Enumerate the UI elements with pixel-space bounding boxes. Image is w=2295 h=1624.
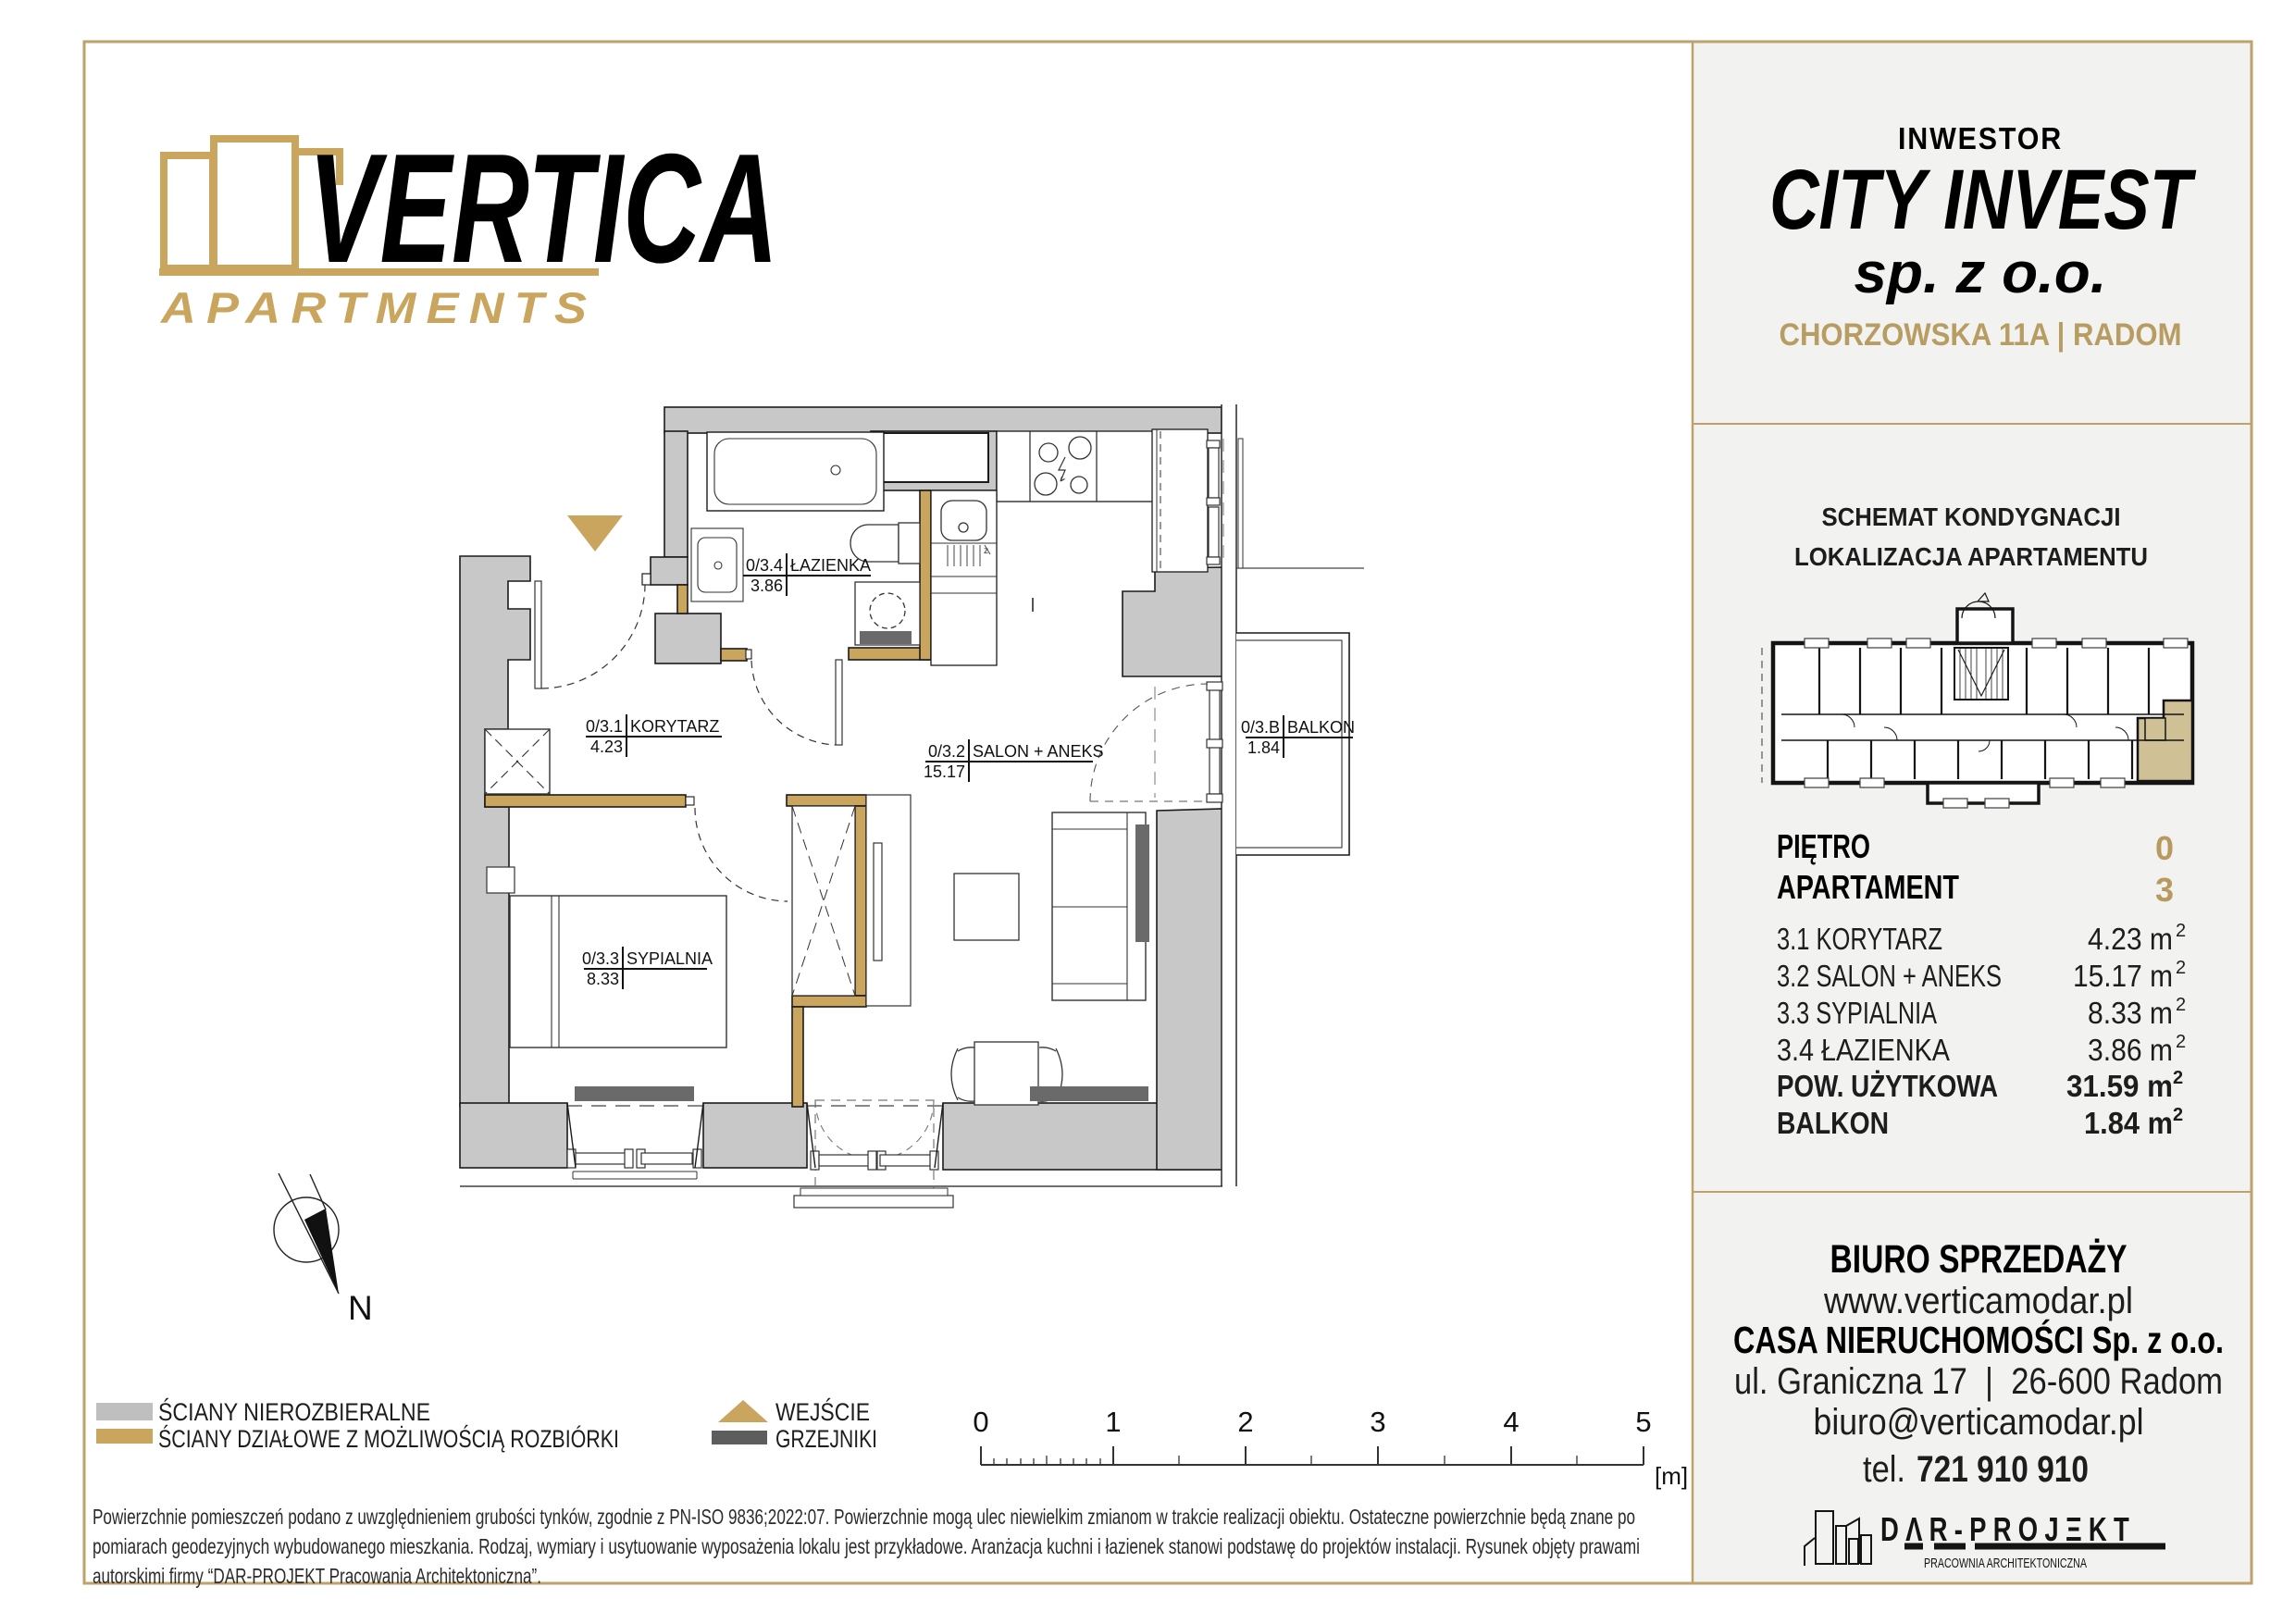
svg-text:WEJŚCIE: WEJŚCIE [775,1396,870,1426]
svg-text:3.2 SALON + ANEKS: 3.2 SALON + ANEKS [1777,959,2002,993]
svg-text:2: 2 [2176,921,2186,941]
svg-text:tel.: tel. [1863,1449,1905,1490]
svg-text:3.3 SYPIALNIA: 3.3 SYPIALNIA [1777,996,1937,1030]
svg-text:0: 0 [2155,829,2174,867]
svg-text:2: 2 [1237,1406,1253,1438]
svg-text:2: 2 [2176,995,2186,1015]
svg-text:3: 3 [2155,871,2174,909]
svg-text:N: N [348,1289,373,1327]
svg-text:0: 0 [973,1406,988,1438]
svg-text:INWESTOR: INWESTOR [1898,121,2063,155]
svg-text:ul. Graniczna 17 | 26-600 Ra: ul. Graniczna 17 | 26-600 Radom [1734,1361,2223,1402]
svg-text:APARTMENTS: APARTMENTS [160,283,597,332]
svg-text:0/3.1: 0/3.1 [586,717,623,736]
svg-text:1: 1 [1105,1406,1121,1438]
svg-text:sp. z o.o.: sp. z o.o. [1855,242,2107,305]
svg-text:0/3.2: 0/3.2 [928,742,965,761]
svg-text:3.1 KORYTARZ: 3.1 KORYTARZ [1777,922,1942,956]
svg-text:4: 4 [1503,1406,1519,1438]
svg-text:3: 3 [1370,1406,1385,1438]
svg-text:721 910 910: 721 910 910 [1917,1449,2089,1490]
svg-text:PIĘTRO: PIĘTRO [1777,827,1870,865]
svg-text:5: 5 [1635,1406,1651,1438]
svg-text:CASA NIERUCHOMOŚCI Sp. z o.o.: CASA NIERUCHOMOŚCI Sp. z o.o. [1733,1319,2224,1361]
svg-text:8.33: 8.33 [587,970,619,988]
svg-text:CHORZOWSKA 11A | RADOM: CHORZOWSKA 11A | RADOM [1780,317,2182,353]
svg-text:4.23: 4.23 [590,738,623,756]
svg-text:0/3.B: 0/3.B [1241,718,1280,737]
svg-text:1.84 m: 1.84 m [2084,1106,2173,1140]
svg-text:VERTICA: VERTICA [308,121,778,295]
svg-text:BALKON: BALKON [1287,718,1355,737]
svg-text:2: 2 [2173,1068,2183,1088]
svg-text:15.17 m: 15.17 m [2073,959,2173,993]
svg-text:0/3.4: 0/3.4 [746,556,783,575]
svg-text:3.86 m: 3.86 m [2088,1033,2173,1067]
svg-text:PRACOWNIA ARCHITEKTONICZNA: PRACOWNIA ARCHITEKTONICZNA [1924,1556,2087,1571]
svg-text:SALON + ANEKS: SALON + ANEKS [973,742,1104,761]
svg-text:4.23 m: 4.23 m [2088,922,2173,956]
svg-text:1.84: 1.84 [1247,738,1280,757]
svg-text:pomiarach geodezyjnych wybudow: pomiarach geodezyjnych wybudowanego mies… [93,1534,1640,1558]
svg-text:0/3.3: 0/3.3 [582,949,619,968]
svg-text:biuro@verticamodar.pl: biuro@verticamodar.pl [1814,1402,2144,1443]
svg-text:2: 2 [2176,958,2186,978]
svg-text:GRZEJNIKI: GRZEJNIKI [775,1425,877,1453]
svg-text:3.86: 3.86 [751,576,783,595]
svg-text:POW. UŻYTKOWA: POW. UŻYTKOWA [1777,1069,1998,1103]
svg-text:z: z [984,546,988,556]
svg-text:3.4 ŁAZIENKA: 3.4 ŁAZIENKA [1777,1033,1950,1067]
svg-text:ŚCIANY NIEROZBIERALNE: ŚCIANY NIEROZBIERALNE [158,1396,430,1426]
svg-text:8.33 m: 8.33 m [2088,996,2173,1030]
svg-text:LOKALIZACJA APARTAMENTU: LOKALIZACJA APARTAMENTU [1794,542,2148,571]
svg-text:[m]: [m] [1655,1462,1688,1490]
svg-text:31.59 m: 31.59 m [2066,1069,2173,1103]
svg-text:15.17: 15.17 [924,762,965,781]
svg-text:KORYTARZ: KORYTARZ [630,717,719,736]
svg-text:Powierzchnie pomieszczeń podan: Powierzchnie pomieszczeń podano z uwzglę… [93,1505,1635,1529]
svg-text:autorskimi firmy “DAR-PROJEKT: autorskimi firmy “DAR-PROJEKT Pracowania… [93,1564,541,1588]
svg-text:SCHEMAT KONDYGNACJI: SCHEMAT KONDYGNACJI [1822,502,2121,531]
svg-text:ŁAZIENKA: ŁAZIENKA [790,556,871,575]
svg-text:DΛR-PROJΞKT: DΛR-PROJΞKT [1880,1510,2136,1548]
svg-text:BIURO SPRZEDAŻY: BIURO SPRZEDAŻY [1830,1237,2128,1282]
svg-text:BALKON: BALKON [1777,1106,1889,1140]
svg-text:SYPIALNIA: SYPIALNIA [626,949,713,968]
svg-text:2: 2 [2173,1105,2183,1125]
svg-text:CITY INVEST: CITY INVEST [1769,153,2196,247]
svg-text:ŚCIANY DZIAŁOWE Z MOŻLIWOŚCIĄ: ŚCIANY DZIAŁOWE Z MOŻLIWOŚCIĄ ROZBIÓRKI [158,1423,619,1453]
svg-text:2: 2 [2176,1032,2186,1052]
svg-text:APARTAMENT: APARTAMENT [1777,868,1959,906]
svg-text:www.verticamodar.pl: www.verticamodar.pl [1823,1281,2133,1321]
